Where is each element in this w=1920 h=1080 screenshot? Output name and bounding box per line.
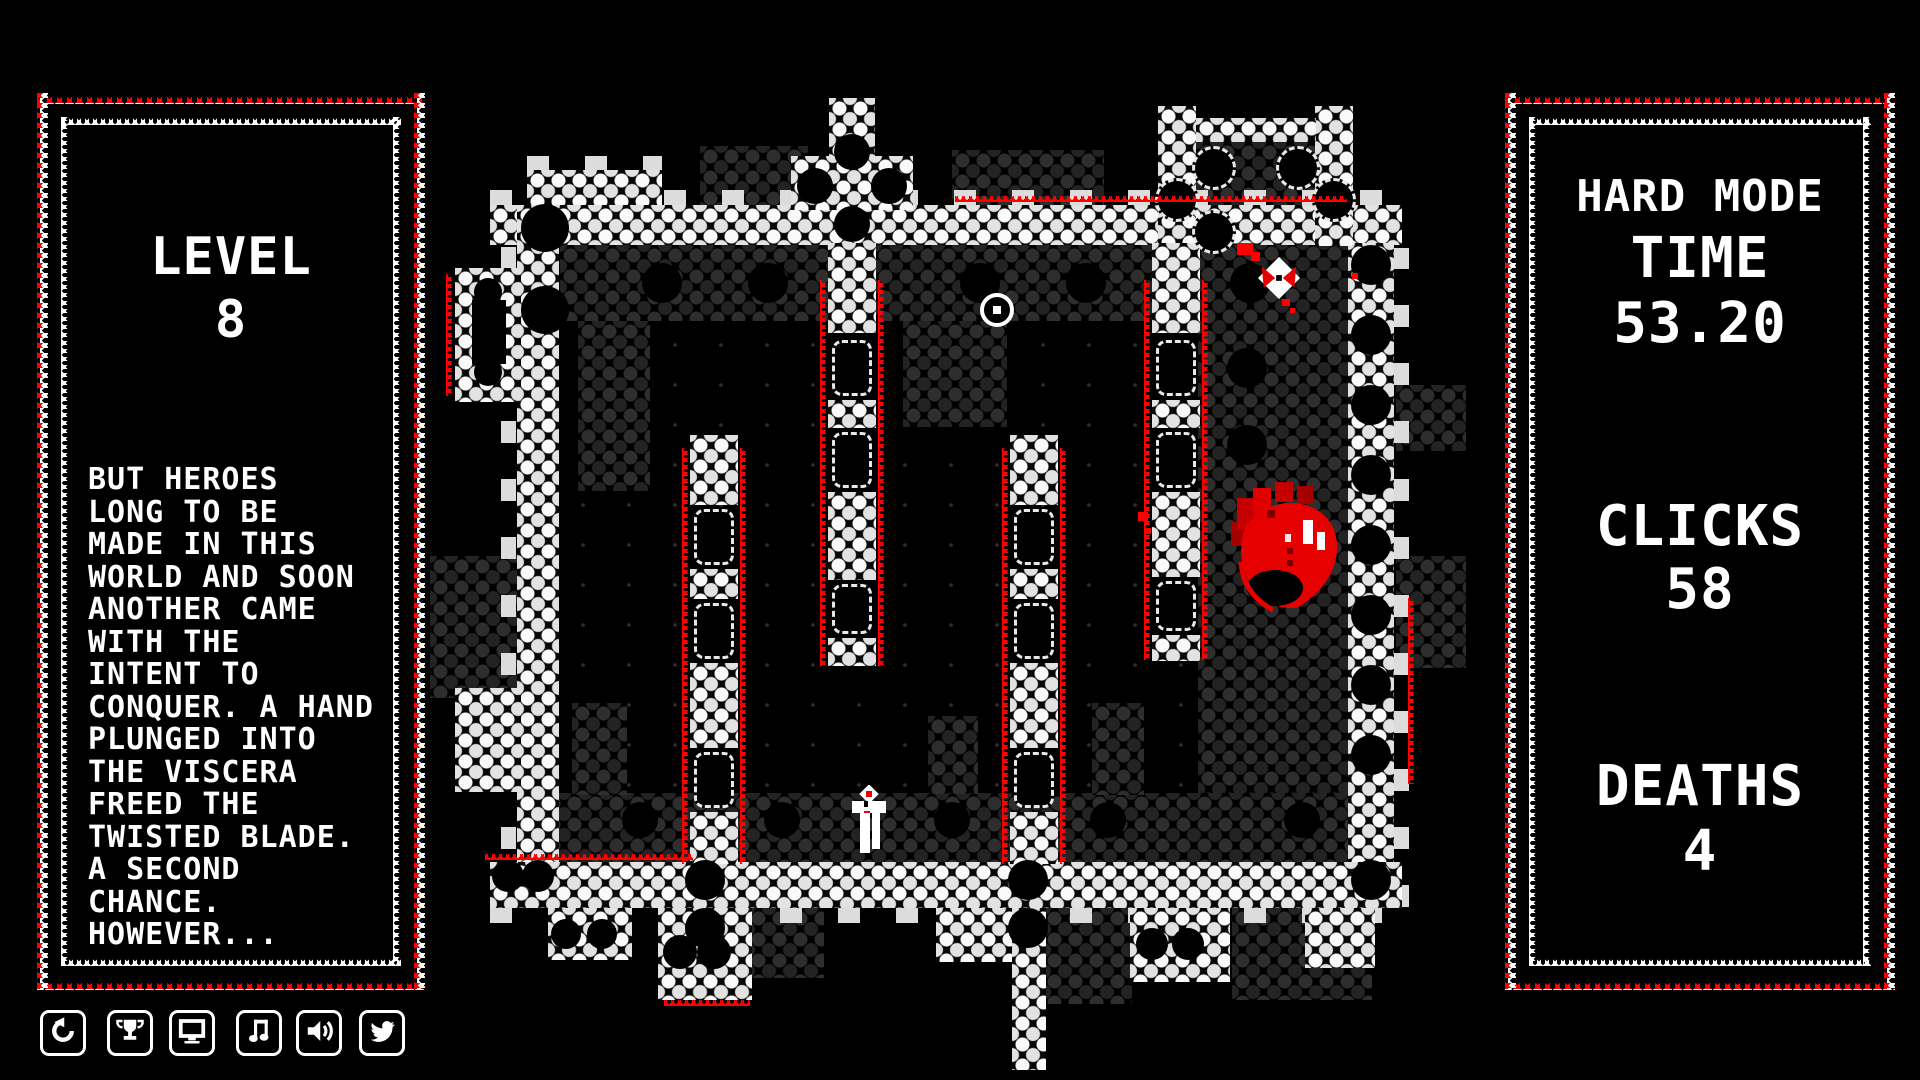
story-line: A SECOND bbox=[88, 854, 408, 887]
knob-circle bbox=[1351, 315, 1391, 355]
knob-circle bbox=[834, 134, 870, 170]
dark-cobble-patch bbox=[1092, 703, 1144, 795]
wall-segment bbox=[690, 569, 738, 599]
target-reticle-cursor[interactable] bbox=[980, 293, 1014, 327]
red-trim bbox=[446, 274, 452, 396]
blood-splatter bbox=[1138, 512, 1148, 521]
wall-segment bbox=[828, 400, 876, 428]
story-line: ANOTHER CAME bbox=[88, 594, 408, 627]
tower-core bbox=[472, 300, 506, 364]
story-line: MADE IN THIS bbox=[88, 529, 408, 562]
wall-knob bbox=[694, 752, 734, 808]
panel-border-inner bbox=[1529, 117, 1871, 125]
red-trim bbox=[664, 1000, 750, 1006]
story-line: CONQUER. A HAND bbox=[88, 692, 408, 725]
player-icon bbox=[848, 785, 890, 857]
story-line: PLUNGED INTO bbox=[88, 724, 408, 757]
blood-splatter bbox=[1352, 273, 1358, 279]
wall-knob bbox=[1156, 340, 1196, 396]
knob-circle bbox=[1008, 860, 1048, 900]
red-trim bbox=[955, 196, 1347, 202]
knob-circle bbox=[587, 919, 617, 949]
knob-circle bbox=[834, 206, 870, 242]
knob-circle bbox=[797, 168, 833, 204]
dark-cobble-patch bbox=[572, 703, 627, 795]
story-line: HOWEVER... bbox=[88, 919, 408, 952]
wall-segment bbox=[1305, 908, 1375, 968]
knob-circle bbox=[1351, 245, 1391, 285]
music-button[interactable] bbox=[236, 1010, 282, 1056]
gate-knob bbox=[1192, 210, 1236, 254]
knob-circle bbox=[1351, 860, 1391, 900]
trophy-button[interactable] bbox=[107, 1010, 153, 1056]
panel-border-inner bbox=[1529, 958, 1871, 966]
wall-segment bbox=[1010, 812, 1058, 864]
knob-circle bbox=[1172, 928, 1204, 960]
knob-circle bbox=[522, 860, 554, 892]
story-line: INTENT TO bbox=[88, 659, 408, 692]
wall-segment bbox=[1010, 663, 1058, 748]
knob-circle bbox=[521, 204, 569, 252]
knob-circle bbox=[1351, 455, 1391, 495]
wall-knob bbox=[1156, 432, 1196, 488]
wall-segment bbox=[690, 435, 738, 505]
knob-circle bbox=[1351, 735, 1391, 775]
wall-crenellation bbox=[527, 156, 662, 170]
wall-segment bbox=[1315, 106, 1353, 246]
stats-panel: HARD MODE TIME 53.20 CLICKS 58 DEATHS 4 bbox=[1505, 93, 1895, 990]
clicks-label: CLICKS bbox=[1505, 494, 1895, 559]
wall-segment bbox=[1010, 435, 1058, 505]
knob-circle bbox=[1351, 525, 1391, 565]
wall-segment bbox=[490, 205, 1402, 245]
gate-knob bbox=[1192, 146, 1236, 190]
knob-circle bbox=[622, 802, 658, 838]
panel-border bbox=[1505, 979, 1895, 990]
knob-circle bbox=[1008, 908, 1048, 948]
knob-circle bbox=[697, 935, 731, 969]
knob-circle bbox=[663, 935, 697, 969]
wall-knob bbox=[694, 509, 734, 565]
story-line: WORLD AND SOON bbox=[88, 562, 408, 595]
display-icon bbox=[177, 1016, 207, 1050]
blade-pickup[interactable] bbox=[1256, 255, 1302, 301]
red-trim bbox=[1002, 448, 1008, 864]
gate-knob bbox=[1276, 146, 1320, 190]
red-trim bbox=[1060, 448, 1066, 864]
mode-label: HARD MODE bbox=[1505, 171, 1895, 222]
story-line: FREED THE bbox=[88, 789, 408, 822]
red-trim bbox=[485, 854, 693, 860]
red-trim bbox=[682, 448, 688, 864]
knob-circle bbox=[1227, 348, 1267, 388]
level-value: 8 bbox=[37, 290, 425, 350]
panel-border-inner bbox=[61, 117, 401, 125]
wall-segment bbox=[490, 862, 1402, 908]
blade-pickup-icon bbox=[1256, 255, 1302, 301]
dark-cobble-patch bbox=[928, 716, 978, 794]
wall-segment bbox=[1152, 243, 1200, 333]
clicks-value: 58 bbox=[1505, 557, 1895, 622]
level-label: LEVEL bbox=[37, 227, 425, 287]
panel-border-inner bbox=[61, 958, 401, 966]
level-panel: LEVEL 8 BUT HEROESLONG TO BEMADE IN THIS… bbox=[37, 93, 425, 990]
heart-icon bbox=[1227, 482, 1347, 614]
twitter-button[interactable] bbox=[359, 1010, 405, 1056]
red-trim bbox=[740, 448, 746, 864]
dark-cobble-patch bbox=[578, 321, 650, 491]
knob-circle bbox=[1227, 425, 1267, 465]
knob-circle bbox=[1351, 665, 1391, 705]
knob-circle bbox=[685, 860, 725, 900]
wall-segment bbox=[936, 908, 1012, 962]
knob-circle bbox=[1351, 385, 1391, 425]
red-trim bbox=[1202, 280, 1208, 660]
game-screen: LEVEL 8 BUT HEROESLONG TO BEMADE IN THIS… bbox=[0, 0, 1920, 1080]
red-trim bbox=[1144, 280, 1150, 660]
wall-segment bbox=[1010, 569, 1058, 599]
deaths-value: 4 bbox=[1505, 819, 1895, 884]
music-icon bbox=[244, 1016, 274, 1050]
panel-border bbox=[37, 979, 425, 990]
twitter-icon bbox=[367, 1016, 397, 1050]
story-line: TWISTED BLADE. bbox=[88, 822, 408, 855]
story-line: BUT HEROES bbox=[88, 464, 408, 497]
restart-button[interactable] bbox=[40, 1010, 86, 1056]
panel-border bbox=[1505, 93, 1895, 104]
story-line: LONG TO BE bbox=[88, 497, 408, 530]
deaths-label: DEATHS bbox=[1505, 754, 1895, 819]
story-text: BUT HEROESLONG TO BEMADE IN THISWORLD AN… bbox=[88, 464, 408, 952]
knob-circle bbox=[474, 358, 502, 386]
wall-segment bbox=[1152, 492, 1200, 577]
sound-button[interactable] bbox=[296, 1010, 342, 1056]
knob-circle bbox=[764, 802, 800, 838]
knob-circle bbox=[521, 286, 569, 334]
red-trim bbox=[820, 280, 826, 666]
knob-circle bbox=[871, 168, 907, 204]
time-label: TIME bbox=[1505, 226, 1895, 291]
wall-segment bbox=[690, 812, 738, 864]
blood-splatter bbox=[1145, 528, 1151, 534]
wall-crenellation bbox=[1394, 248, 1409, 907]
wall-knob bbox=[832, 432, 872, 488]
wall-segment bbox=[1152, 400, 1200, 428]
anatomical-heart[interactable] bbox=[1227, 482, 1347, 614]
time-value: 53.20 bbox=[1505, 291, 1895, 356]
wall-knob bbox=[1156, 581, 1196, 631]
knob-circle bbox=[642, 263, 682, 303]
wall-knob bbox=[832, 584, 872, 634]
story-line: WITH THE bbox=[88, 627, 408, 660]
wall-segment bbox=[455, 688, 521, 792]
trophy-icon bbox=[115, 1016, 145, 1050]
wall-segment bbox=[828, 492, 876, 580]
display-button[interactable] bbox=[169, 1010, 215, 1056]
knob-circle bbox=[1136, 928, 1168, 960]
wall-knob bbox=[1014, 603, 1054, 659]
knob-circle bbox=[748, 263, 788, 303]
panel-border bbox=[37, 93, 425, 104]
knob-circle bbox=[1090, 802, 1126, 838]
wall-segment bbox=[828, 638, 876, 666]
knob-circle bbox=[474, 278, 502, 306]
knob-circle bbox=[1284, 802, 1320, 838]
wall-segment bbox=[690, 663, 738, 748]
blood-splatter bbox=[1290, 308, 1295, 313]
wall-knob bbox=[832, 340, 872, 396]
story-line: THE VISCERA bbox=[88, 757, 408, 790]
knob-circle bbox=[1351, 595, 1391, 635]
red-trim bbox=[1408, 598, 1414, 784]
wall-segment bbox=[828, 243, 876, 333]
knob-circle bbox=[934, 802, 970, 838]
wall-knob bbox=[694, 603, 734, 659]
wall-knob bbox=[1014, 509, 1054, 565]
knob-circle bbox=[1066, 263, 1106, 303]
knob-circle bbox=[551, 919, 581, 949]
red-trim bbox=[878, 280, 884, 666]
knob-circle bbox=[492, 860, 524, 892]
story-line: CHANCE. bbox=[88, 887, 408, 920]
restart-icon bbox=[48, 1016, 78, 1050]
wall-knob bbox=[1014, 752, 1054, 808]
wall-segment bbox=[1196, 118, 1316, 142]
dark-cobble-patch bbox=[903, 321, 1007, 427]
sound-icon bbox=[304, 1016, 334, 1050]
wall-segment bbox=[1158, 106, 1196, 246]
wall-segment bbox=[1152, 635, 1200, 661]
player-character[interactable] bbox=[848, 785, 890, 857]
